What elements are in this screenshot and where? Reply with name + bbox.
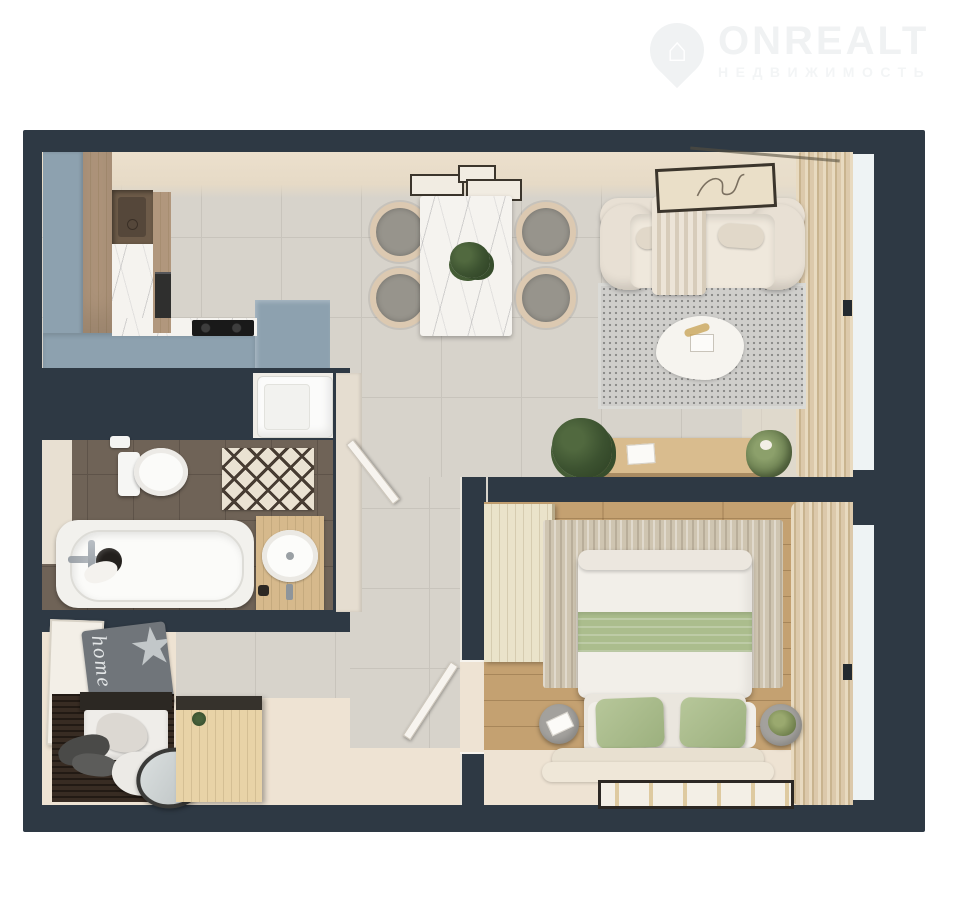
shoe-bench-top: [176, 696, 262, 710]
bed-blanket-band: [578, 612, 752, 652]
bed-pillow-sage: [679, 697, 747, 749]
nightstand-plant: [768, 710, 796, 736]
sofa: [600, 198, 805, 293]
kitchen-sink-basin: [118, 197, 146, 237]
hallway-floor-tile: [176, 632, 350, 698]
sofa-cushion: [717, 222, 765, 249]
duvet-fold: [578, 550, 752, 570]
line-art: [658, 166, 774, 206]
bath-mat: [222, 448, 314, 510]
sink-faucet-stub: [286, 584, 293, 600]
console-desk: [593, 438, 763, 478]
sink-tap: [286, 552, 294, 560]
bed-pillow-sage: [595, 697, 665, 749]
cooktop: [192, 320, 254, 336]
desk-card: [626, 443, 655, 465]
toilet-paper-holder: [110, 436, 130, 448]
kitchen-counter-bottom: [43, 333, 255, 370]
bedroom-doorway: [460, 660, 484, 754]
sofa-wall-art: [655, 163, 777, 213]
vanity-bottle: [258, 585, 269, 596]
dresser-top: [80, 692, 172, 710]
bench-plant-sprig: [192, 712, 206, 726]
toilet-bowl: [134, 448, 188, 496]
bedroom-curtain: [791, 502, 853, 805]
window-handle: [843, 300, 852, 316]
floor-plant: [552, 418, 612, 478]
doormat-text: home: [86, 634, 117, 690]
wall-frame-1: [410, 174, 464, 196]
bedroom-window: [851, 525, 874, 800]
window-handle: [843, 664, 852, 680]
desk-flower-bloom: [760, 440, 772, 450]
bed-bench-mat: [542, 762, 774, 782]
corridor-wall-face: [333, 373, 362, 612]
kitchen-cabinet-column: [83, 152, 112, 333]
dining-chair: [516, 202, 576, 262]
sink-drain: [127, 219, 138, 230]
corridor-floor-cream: [350, 748, 462, 805]
washer-lid: [264, 384, 310, 430]
shoe-bench: [176, 696, 262, 802]
living-window: [851, 154, 874, 470]
oven: [155, 272, 171, 318]
table-plant: [450, 242, 490, 278]
coffee-table-book: [690, 334, 714, 352]
floorplan-page: ⌂ ONREALT НЕДВИЖИМОСТЬ: [0, 0, 960, 910]
dining-chair: [516, 268, 576, 328]
bedroom-top-wall: [460, 477, 905, 502]
kitchen-fridge-block: [255, 300, 330, 372]
corridor-floor: [350, 477, 462, 748]
bedroom-runner-rug: [598, 780, 794, 809]
floorplan-render: ★ home: [0, 0, 960, 910]
